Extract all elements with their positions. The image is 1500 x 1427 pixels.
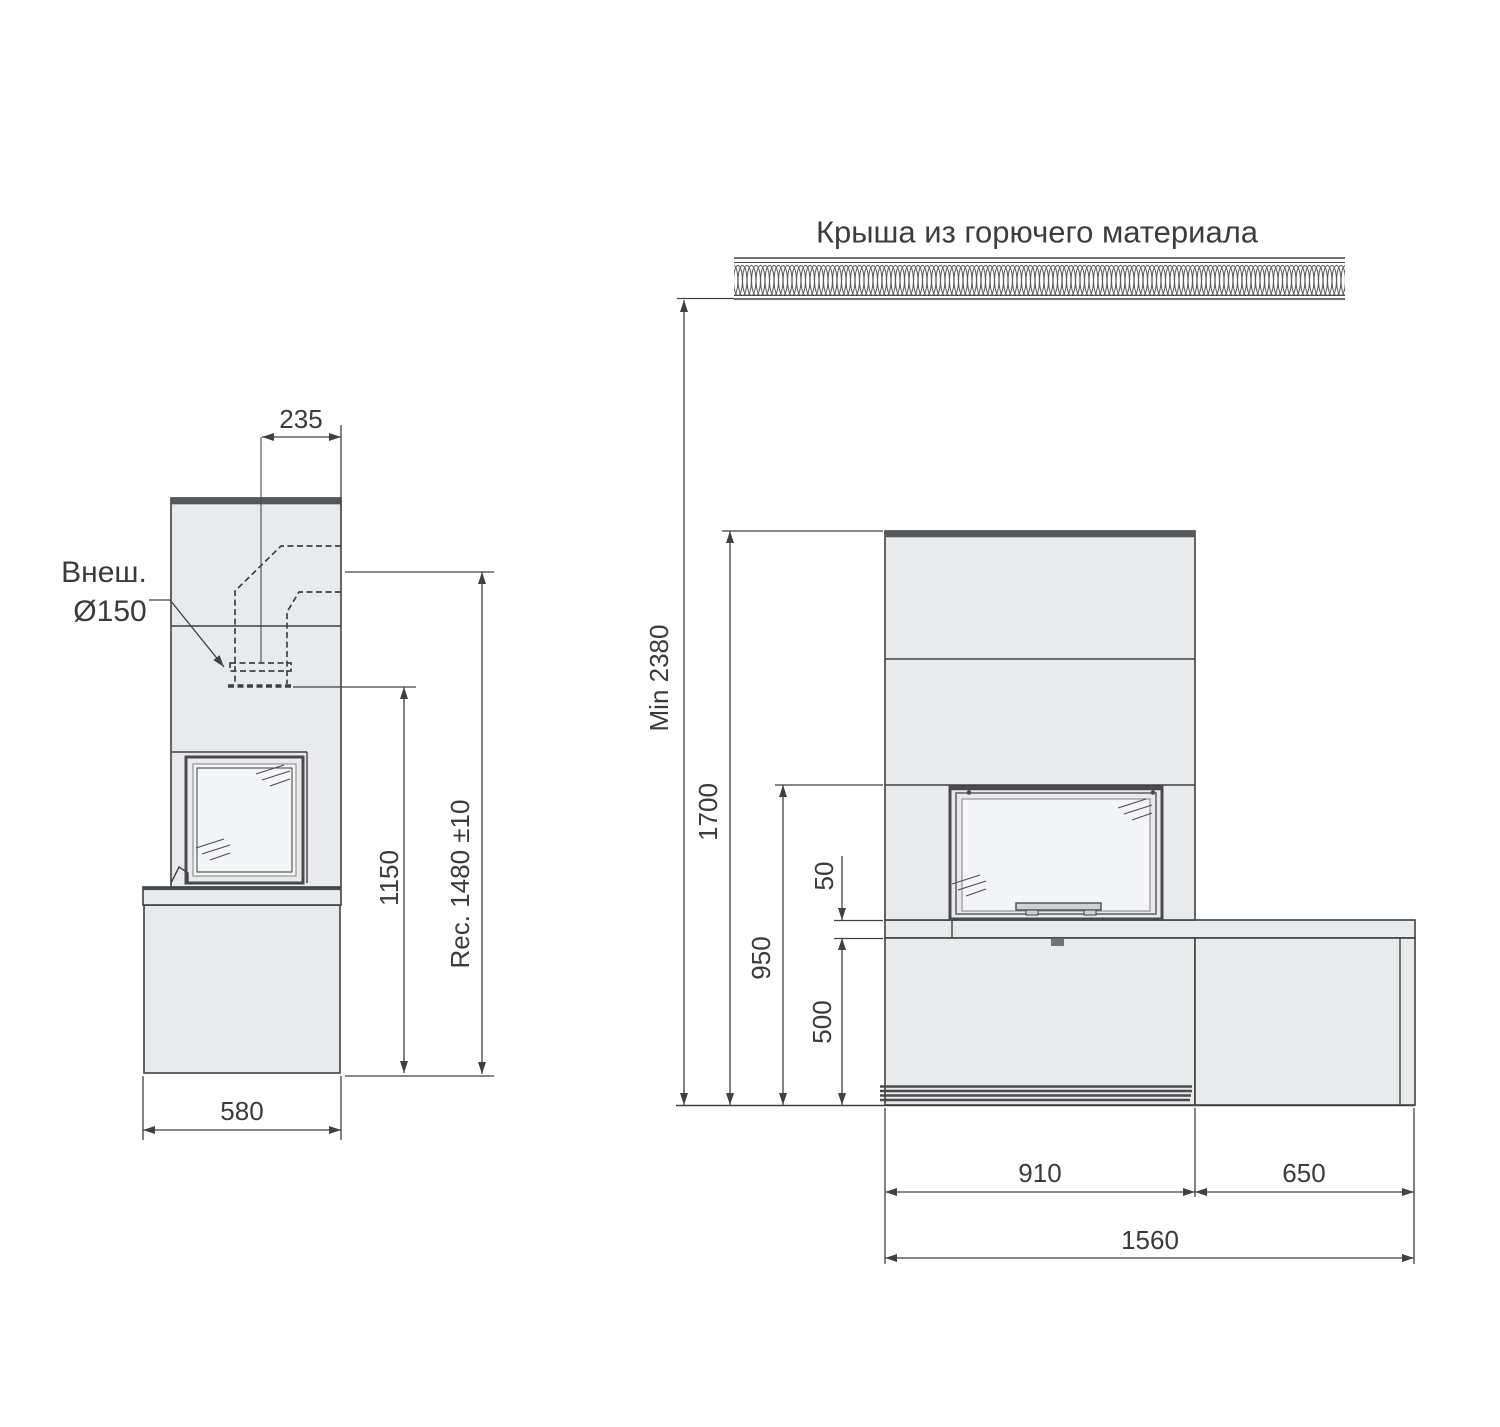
dim-flue-offset: 235: [279, 406, 322, 432]
roof-material-label: Крыша из горючего материала: [816, 217, 1258, 248]
dim-body-height: 1700: [695, 783, 721, 841]
dim-bench-height: 500: [809, 1000, 835, 1043]
dim-rec-height: Rec. 1480 ±10: [447, 800, 473, 969]
fireplace-installation-drawing: Крыша из горючего материала Внеш. Ø150 2…: [0, 0, 1500, 1427]
flue-callout-line2: Ø150: [73, 597, 146, 627]
front-view: [676, 258, 1415, 1264]
technical-drawing-linework: [0, 0, 1500, 1427]
side-view: [143, 425, 494, 1140]
flue-callout-line1: Внеш.: [61, 558, 147, 588]
dim-body-width: 910: [1018, 1160, 1061, 1186]
dim-total-width: 1560: [1121, 1227, 1179, 1253]
dim-flue-height: 1150: [376, 850, 402, 906]
dim-bench-thickness: 50: [811, 862, 837, 891]
dim-bench-extension: 650: [1282, 1160, 1325, 1186]
dim-opening-height: 950: [748, 936, 774, 979]
dim-min-ceiling: Min 2380: [646, 625, 672, 732]
dim-depth: 580: [220, 1098, 263, 1124]
